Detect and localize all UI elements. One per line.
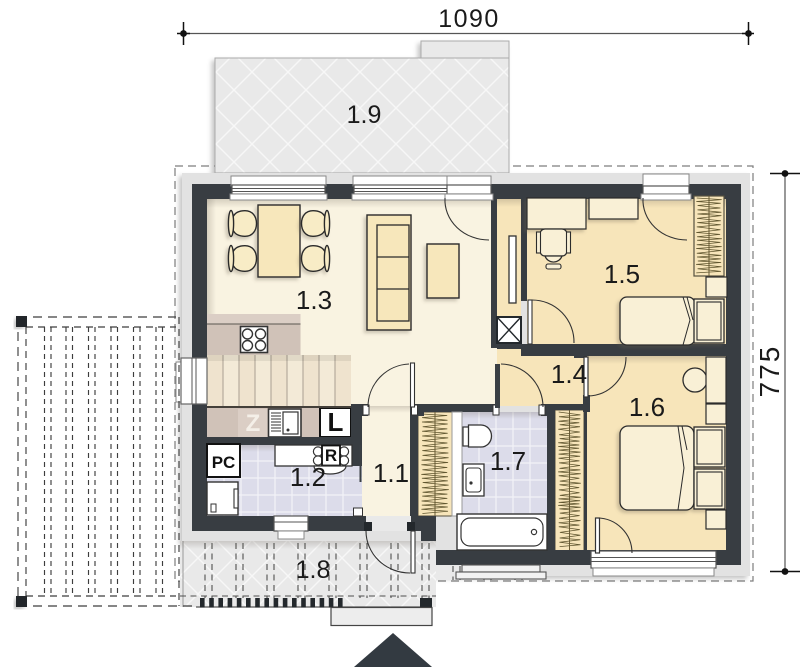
svg-text:Z: Z bbox=[246, 410, 261, 437]
svg-text:L: L bbox=[328, 407, 344, 437]
svg-text:1.8: 1.8 bbox=[296, 556, 331, 584]
svg-text:1.3: 1.3 bbox=[296, 285, 332, 315]
svg-text:1090: 1090 bbox=[438, 5, 500, 33]
svg-text:R: R bbox=[325, 446, 337, 465]
svg-text:1.7: 1.7 bbox=[490, 446, 526, 476]
svg-text:1.4: 1.4 bbox=[551, 359, 587, 389]
svg-text:PC: PC bbox=[212, 453, 236, 472]
svg-text:1.6: 1.6 bbox=[629, 392, 665, 422]
svg-text:1.9: 1.9 bbox=[347, 101, 382, 129]
svg-text:1.5: 1.5 bbox=[604, 259, 640, 289]
svg-text:775: 775 bbox=[754, 345, 785, 398]
svg-text:1.2: 1.2 bbox=[290, 462, 326, 492]
svg-text:1.1: 1.1 bbox=[373, 458, 409, 488]
